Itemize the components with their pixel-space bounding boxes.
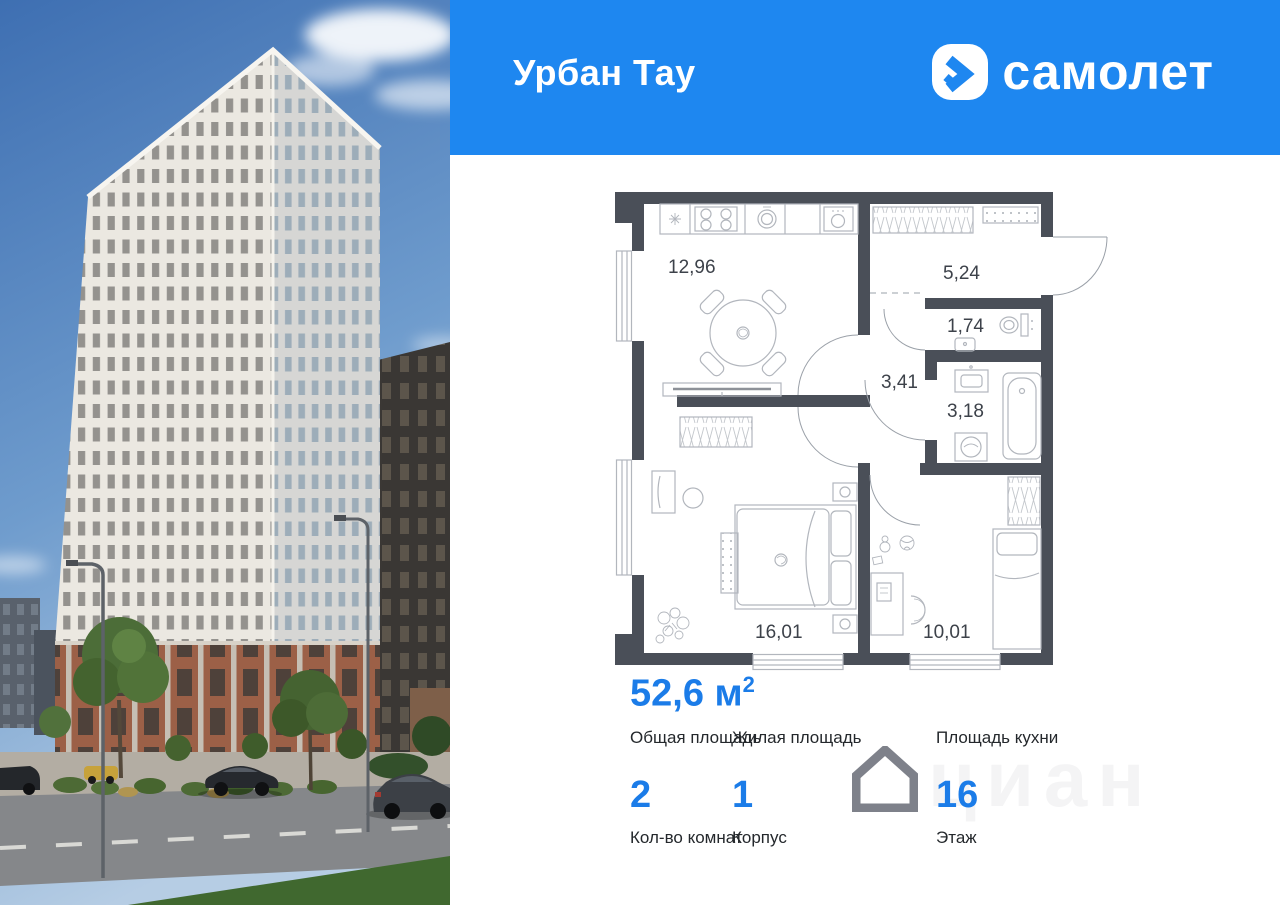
shoe-cabinet bbox=[983, 207, 1038, 223]
single-bed bbox=[993, 529, 1041, 649]
wc-door bbox=[884, 309, 925, 350]
building-photo bbox=[0, 0, 450, 905]
light-icon bbox=[669, 213, 681, 225]
total-area-sup: 2 bbox=[743, 672, 755, 697]
samolet-logo-icon bbox=[932, 44, 988, 100]
room-area-label: 16,01 bbox=[755, 622, 803, 643]
sink-icon bbox=[824, 207, 853, 231]
rooms-count-label: Кол-во комнат bbox=[630, 828, 743, 848]
kids-room-door bbox=[870, 475, 920, 525]
bedroom-wardrobe bbox=[680, 417, 752, 447]
kitchen-counter bbox=[660, 204, 858, 234]
plan-windows bbox=[617, 251, 1001, 670]
desk-with-chair bbox=[871, 573, 925, 635]
washer-icon bbox=[955, 433, 987, 461]
lamp-icon bbox=[840, 619, 850, 629]
nightstand bbox=[833, 615, 857, 633]
samolet-wordmark: самолет bbox=[1002, 47, 1214, 97]
dining-table bbox=[698, 288, 788, 378]
washing-machine-icon bbox=[758, 207, 776, 228]
dresser-with-mirror bbox=[652, 471, 703, 513]
bench bbox=[721, 533, 738, 593]
toilet-icon bbox=[1000, 314, 1032, 336]
room-area-label: 12,96 bbox=[668, 257, 716, 278]
total-area-number: 52,6 bbox=[630, 673, 704, 715]
wc-sink-icon bbox=[955, 338, 975, 351]
building-value: 1 bbox=[732, 776, 753, 814]
plant-icon bbox=[656, 608, 689, 643]
kitchen-area-label: Площадь кухни bbox=[936, 728, 1058, 748]
bathtub-icon bbox=[1003, 373, 1041, 459]
floor-value: 16 bbox=[936, 776, 978, 814]
room-area-label: 1,74 bbox=[947, 316, 984, 337]
nightstand bbox=[833, 483, 857, 501]
room-area-label: 3,41 bbox=[881, 372, 918, 393]
project-header: Урбан Тау самолет bbox=[450, 0, 1280, 155]
room-area-label: 10,01 bbox=[923, 622, 971, 643]
stove-icon bbox=[695, 207, 737, 231]
total-area-value: 52,6 м2 bbox=[630, 674, 755, 713]
lamp-icon bbox=[840, 487, 850, 497]
total-area-unit: м bbox=[704, 673, 743, 715]
project-title: Урбан Тау bbox=[513, 52, 696, 94]
floor-label: Этаж bbox=[936, 828, 977, 848]
coat-rack bbox=[873, 207, 973, 233]
cian-house-icon bbox=[852, 746, 918, 812]
rooms-count-value: 2 bbox=[630, 776, 651, 814]
living-area-label: Жилая площадь bbox=[732, 728, 861, 748]
room-area-label: 3,18 bbox=[947, 401, 984, 422]
listing-card: Урбан Тау самолет циан bbox=[0, 0, 1280, 905]
kitchen-door bbox=[798, 335, 858, 395]
bedroom-door bbox=[798, 407, 858, 467]
cian-watermark: циан bbox=[852, 740, 1154, 818]
entrance-door bbox=[1053, 237, 1107, 295]
room-area-label: 5,24 bbox=[943, 263, 980, 284]
tv-console bbox=[663, 383, 781, 396]
kids-wardrobe bbox=[1008, 477, 1040, 525]
double-bed bbox=[735, 505, 856, 609]
samolet-logo: самолет bbox=[932, 44, 1214, 100]
building-label: Корпус bbox=[732, 828, 787, 848]
floor-plan: 12,96 5,24 1,74 3,41 3,18 16,01 10,01 bbox=[615, 185, 1125, 683]
toys bbox=[872, 536, 914, 565]
bath-sink-icon bbox=[955, 366, 988, 392]
